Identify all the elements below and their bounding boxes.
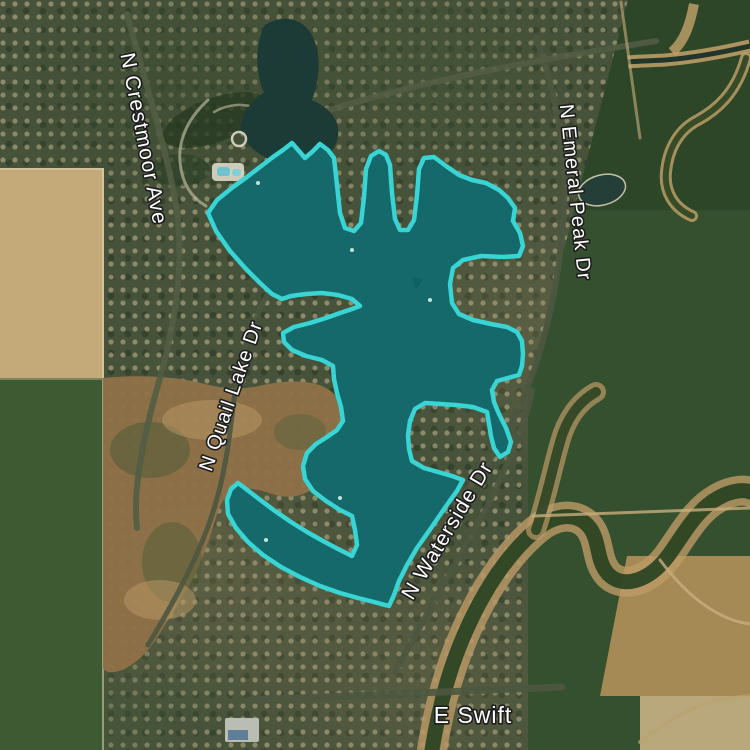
canal-top-right bbox=[628, 4, 750, 216]
boat-dot bbox=[264, 538, 268, 542]
boat-dot bbox=[350, 248, 354, 252]
swimming-pool bbox=[232, 169, 241, 176]
road-swift-east bbox=[640, 696, 750, 742]
boat-dot bbox=[256, 181, 260, 185]
satellite-map-canvas[interactable]: N Crestmoor Ave N Emeral Peak Dr N Quail… bbox=[0, 0, 750, 750]
road-swift bbox=[250, 687, 562, 700]
boat-dot bbox=[428, 298, 432, 302]
scrub-light-streak bbox=[124, 580, 196, 620]
school-building bbox=[225, 718, 259, 742]
swimming-pool bbox=[217, 167, 230, 176]
boat-dot bbox=[338, 496, 342, 500]
vineyard-dirt-road bbox=[621, 2, 640, 138]
creek-corridor bbox=[432, 392, 750, 750]
fountain-circle bbox=[232, 132, 246, 146]
lake-highlight-polygon[interactable] bbox=[208, 143, 523, 606]
map-overlay-svg: N Crestmoor Ave N Emeral Peak Dr N Quail… bbox=[0, 0, 750, 750]
street-label-swift: E Swift bbox=[434, 702, 513, 728]
